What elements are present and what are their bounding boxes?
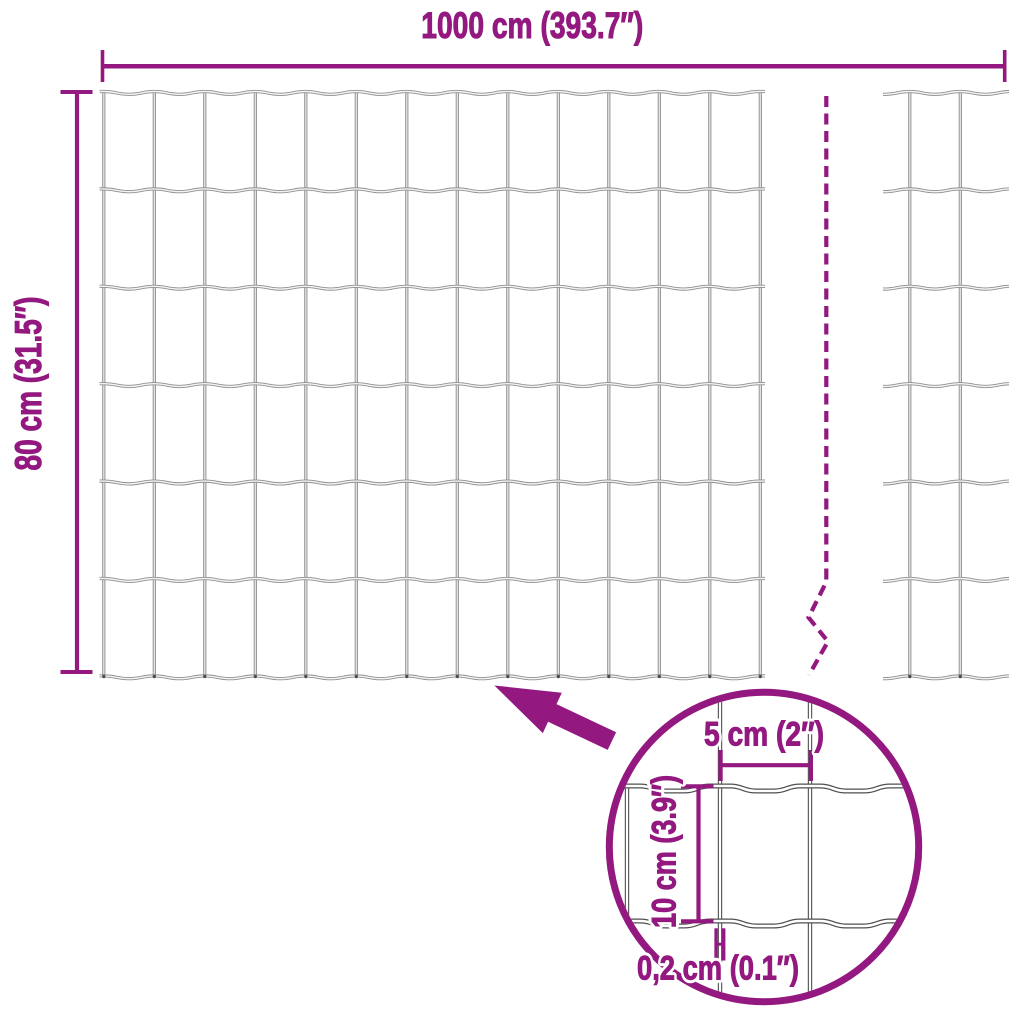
svg-text:0,2 cm (0.1″): 0,2 cm (0.1″) [637, 950, 799, 988]
svg-text:5 cm (2″): 5 cm (2″) [704, 716, 824, 754]
svg-text:10 cm (3.9″): 10 cm (3.9″) [646, 775, 684, 928]
svg-text:80 cm (31.5″): 80 cm (31.5″) [8, 297, 49, 471]
svg-text:1000 cm (393.7″): 1000 cm (393.7″) [421, 5, 643, 46]
